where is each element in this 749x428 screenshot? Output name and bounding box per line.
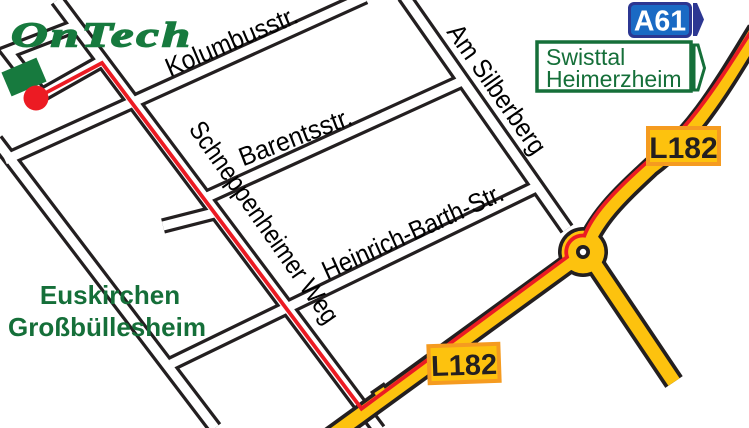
svg-text:Großbüllesheim: Großbüllesheim xyxy=(8,312,206,342)
svg-text:OnTech: OnTech xyxy=(11,16,193,55)
svg-text:Heimerzheim: Heimerzheim xyxy=(546,66,681,92)
svg-text:L182: L182 xyxy=(649,132,717,165)
svg-text:A61: A61 xyxy=(634,6,686,38)
svg-text:Euskirchen: Euskirchen xyxy=(40,280,180,310)
svg-text:L182: L182 xyxy=(430,349,497,383)
